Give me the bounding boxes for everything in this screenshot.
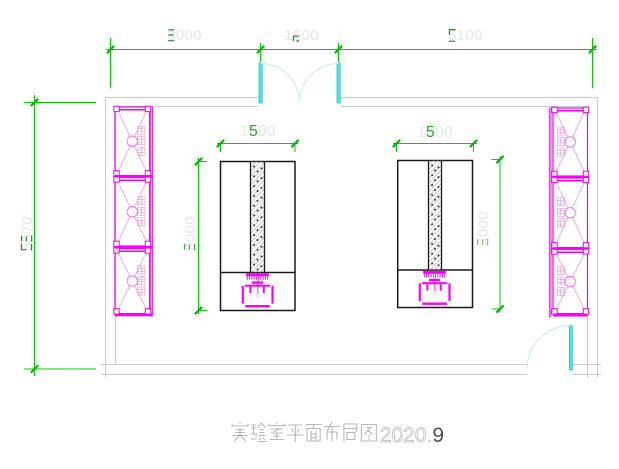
svg-text:1600: 1600 <box>284 27 319 44</box>
svg-text:1500: 1500 <box>417 124 453 141</box>
svg-text:2020.9: 2020.9 <box>380 424 444 447</box>
svg-text:1500: 1500 <box>240 123 276 140</box>
